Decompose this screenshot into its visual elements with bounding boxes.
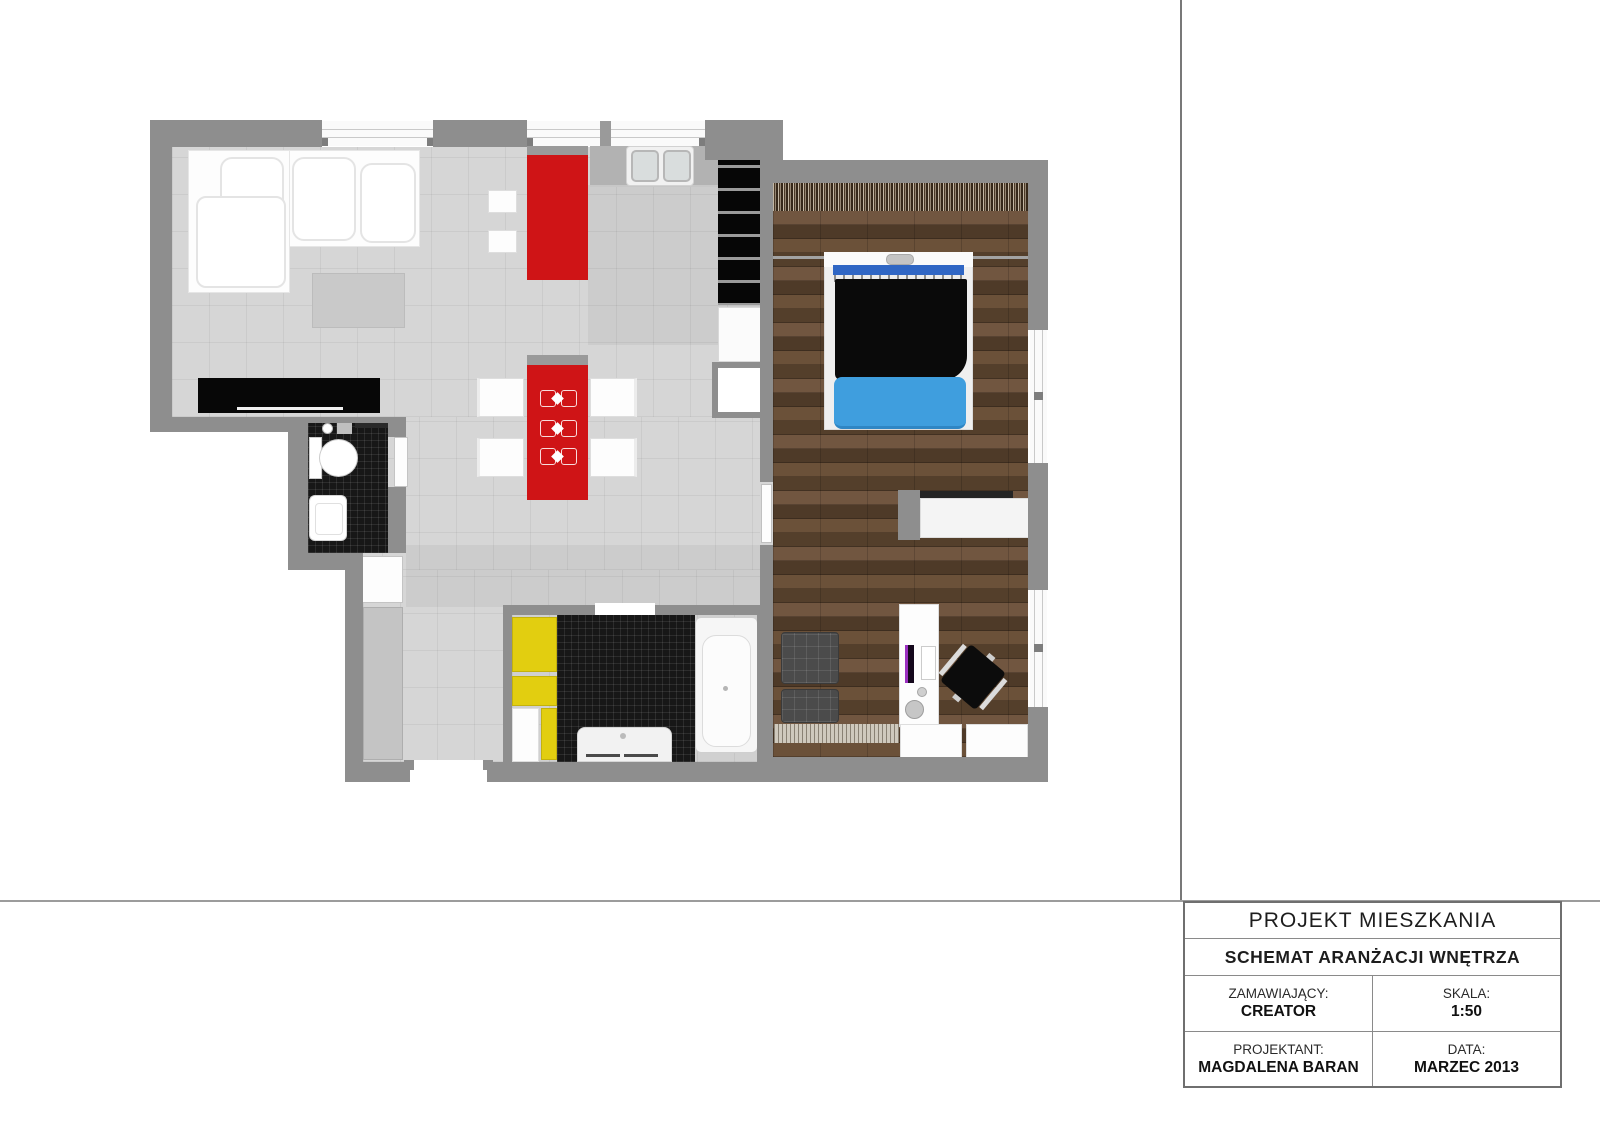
bathtub-drain: [723, 686, 728, 691]
bedroom-bottom-rug: [774, 724, 899, 743]
rug-motif-2: [540, 420, 575, 437]
bar-stool-1: [488, 190, 517, 213]
wall-bottom-segment-2: [487, 762, 770, 782]
wall-bath-right: [757, 605, 773, 762]
ottoman-1: [781, 632, 839, 684]
wall-wc-top-thin: [308, 417, 388, 423]
kitchen-tall-cabinets: [718, 145, 762, 305]
field-date-label: DATA:: [1448, 1042, 1486, 1057]
bedroom-door-leaf: [761, 484, 772, 543]
bed-blue-strip: [833, 265, 964, 275]
field-client-value: CREATOR: [1241, 1003, 1316, 1021]
wall-bath-top-2: [655, 605, 770, 615]
sofa-cushion-corner: [360, 163, 416, 243]
bed-blanket: [834, 377, 966, 429]
wall-kitchen-bedroom-lower: [760, 545, 773, 613]
field-designer-value: MAGDALENA BARAN: [1198, 1059, 1358, 1077]
toilet-bowl: [319, 439, 358, 477]
window-top-1-tick-left: [322, 138, 328, 146]
vanity-drawer-line-2: [624, 754, 658, 757]
project-subtitle: SCHEMAT ARANŻACJI WNĘTRZA: [1185, 939, 1560, 976]
bath-cabinet-yellow-3: [541, 708, 557, 760]
shelf-wall-stub: [898, 490, 920, 540]
field-client: ZAMAWIAJĄCY: CREATOR: [1185, 976, 1373, 1032]
wc-door-leaf-right: [394, 437, 408, 487]
entry-door-recess: [410, 760, 487, 782]
title-block: PROJEKT MIESZKANIA SCHEMAT ARANŻACJI WNĘ…: [1183, 901, 1562, 1088]
hall-wardrobe: [363, 607, 403, 760]
wc-door-swing: [360, 556, 403, 603]
kitchen-sink-basin-2: [663, 150, 691, 182]
wc-wall-box: [337, 423, 352, 434]
field-date: DATA: MARZEC 2013: [1373, 1032, 1560, 1086]
sofa-chaise-cushion: [196, 196, 286, 288]
ottoman-2: [781, 689, 839, 723]
laptop: [905, 645, 914, 683]
desk-stool-knob: [917, 687, 927, 697]
project-title: PROJEKT MIESZKANIA: [1185, 903, 1560, 939]
bath-cabinet-yellow-1: [512, 617, 557, 672]
bed-duvet: [835, 279, 967, 380]
wall-wc-left: [288, 417, 308, 570]
washing-machine: [712, 362, 762, 418]
tv-screen-line: [237, 407, 343, 410]
dining-chair-left-1: [477, 378, 524, 417]
wall-hall-left: [345, 553, 363, 782]
kitchen-red-rug: [527, 155, 588, 280]
bathtub-inner: [702, 635, 751, 747]
hallway-floor-shade: [406, 545, 760, 607]
sheet-vertical-divider: [1180, 0, 1182, 901]
wall-living-bottom: [150, 417, 308, 432]
dining-chair-right-1: [590, 378, 637, 417]
rug-motif-3: [540, 448, 575, 465]
wall-bottom-segment-1: [345, 762, 410, 782]
window-top-1-line-b: [322, 137, 433, 138]
wall-kitchen-bedroom-upper: [760, 183, 773, 482]
vanity-faucet: [620, 733, 626, 739]
bedroom-top-rug: [773, 183, 1028, 211]
bath-cabinet-white: [512, 708, 539, 762]
dining-rug-cap: [527, 355, 588, 365]
bath-door-opening: [595, 603, 655, 615]
field-designer-label: PROJEKTANT:: [1233, 1042, 1324, 1057]
wall-shelf: [920, 498, 1030, 538]
field-scale-label: SKALA:: [1443, 986, 1490, 1001]
wall-bedroom-top: [760, 160, 1048, 183]
title-block-grid: ZAMAWIAJĄCY: CREATOR SKALA: 1:50 PROJEKT…: [1185, 976, 1560, 1086]
bedroom-cabinet-2: [966, 724, 1028, 758]
wall-bedroom-right-2: [1028, 463, 1048, 590]
field-client-label: ZAMAWIAJĄCY:: [1228, 986, 1328, 1001]
dining-chair-left-2: [477, 438, 524, 477]
window-top-1-tick-right: [427, 138, 433, 146]
bar-stool-2: [488, 230, 517, 253]
coffee-table: [312, 273, 405, 328]
sofa-cushion-middle: [292, 157, 356, 241]
wall-top-segment-1: [150, 120, 322, 147]
wall-wc-right-upper: [388, 417, 406, 437]
wall-wc-right-lower: [388, 487, 406, 553]
window-bedroom-2-tick: [1034, 644, 1043, 652]
window-top-1-line-a: [322, 129, 433, 130]
desk-pad: [921, 646, 936, 680]
window-top-2-line-b: [527, 137, 705, 138]
window-bedroom-1-tick: [1034, 392, 1043, 400]
drawing-sheet: PROJEKT MIESZKANIA SCHEMAT ARANŻACJI WNĘ…: [0, 0, 1600, 1131]
window-top-2-tick-left: [527, 138, 533, 146]
wall-bedroom-right-3: [1028, 707, 1048, 782]
field-date-value: MARZEC 2013: [1414, 1059, 1519, 1077]
kitchen-sink-basin-1: [631, 150, 659, 182]
desk-stool: [905, 700, 924, 719]
bedroom-cabinet-1: [900, 724, 962, 758]
field-designer: PROJEKTANT: MAGDALENA BARAN: [1185, 1032, 1373, 1086]
wall-wc-bottom: [288, 553, 347, 570]
headboard-tab: [886, 254, 914, 265]
rug-motif-1: [540, 390, 575, 407]
window-top-2: [527, 121, 705, 146]
wall-bath-top-1: [503, 605, 595, 615]
wall-left: [150, 120, 172, 432]
entry-notch-left: [404, 760, 414, 770]
fridge: [718, 307, 762, 362]
window-top-2-tick-right: [699, 138, 705, 146]
field-scale-value: 1:50: [1451, 1003, 1482, 1021]
wall-bath-left: [503, 605, 512, 762]
wc-sink-basin: [315, 503, 343, 535]
wall-bedroom-right-1: [1028, 160, 1048, 330]
bath-cabinet-yellow-2: [512, 676, 557, 706]
wall-shelf-dark-strip: [920, 491, 1013, 498]
window-top-1: [322, 121, 433, 146]
wall-bedroom-bottom: [760, 757, 1048, 782]
field-scale: SKALA: 1:50: [1373, 976, 1560, 1032]
window-top-2-line-a: [527, 129, 705, 130]
toilet-paper-roll: [322, 423, 333, 434]
wall-top-segment-3: [705, 120, 783, 160]
window-top-2-mullion: [600, 121, 611, 146]
dining-chair-right-2: [590, 438, 637, 477]
wall-top-segment-2: [433, 120, 527, 147]
vanity-drawer-line-1: [586, 754, 620, 757]
